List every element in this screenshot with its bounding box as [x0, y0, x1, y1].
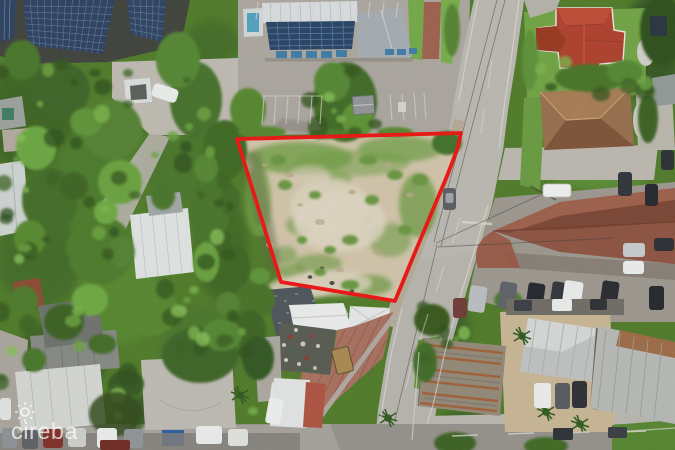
svg-text:cireba: cireba [11, 418, 78, 444]
